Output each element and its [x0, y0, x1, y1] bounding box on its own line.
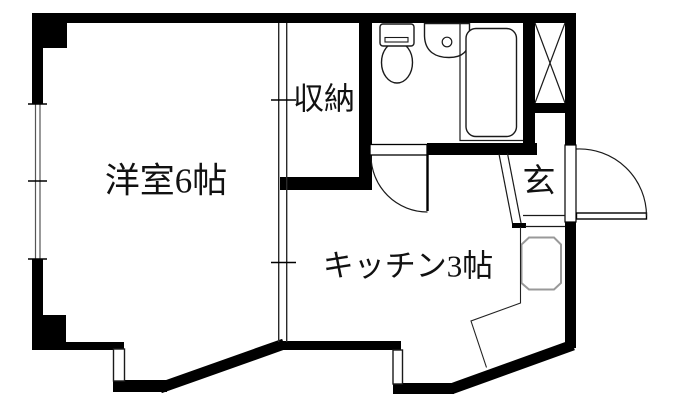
- entrance-door-swing-arc: [577, 149, 647, 216]
- washer-space: [522, 238, 562, 290]
- wall-segment-shaft-bottom: [523, 103, 576, 113]
- toilet-lid-line: [385, 38, 408, 43]
- room-label-western: 洋室6帖: [105, 162, 228, 201]
- wall-segment-left-upper: [32, 13, 43, 104]
- sink: [425, 24, 470, 58]
- genkan-step-line-2: [508, 154, 522, 226]
- floor-plan-canvas: 洋室6帖 キッチン3帖 収納 玄: [0, 0, 678, 406]
- room-label-closet: 収納: [293, 82, 355, 117]
- window-bottom-right: [393, 350, 403, 384]
- bathroom-door-opening: [370, 145, 427, 156]
- wall-segment-bottom-a: [32, 342, 124, 350]
- wall-segment-bath-bottom: [427, 143, 537, 155]
- wall-segment-closet-bottom: [280, 177, 372, 190]
- wall-diagonal-right: [451, 345, 573, 389]
- wall-diagonal-left: [160, 344, 284, 388]
- window-bottom-left: [114, 349, 125, 381]
- wall-segment-right-lower: [565, 222, 576, 348]
- wall-segment-bottom-c: [280, 341, 401, 350]
- wall-segment-top: [32, 13, 576, 23]
- entrance-door: [565, 145, 647, 222]
- room-label-entrance: 玄: [523, 163, 556, 200]
- bathtub-tub: [466, 29, 517, 137]
- toilet-bowl: [382, 42, 413, 83]
- wall-segment-closet-bath: [359, 13, 372, 190]
- genkan-step-line-1: [499, 154, 513, 226]
- wall-segment-shaft-left: [523, 13, 535, 155]
- window-left: [28, 104, 47, 259]
- bathroom-door-swing-arc: [371, 156, 428, 213]
- entrance-door-opening: [565, 145, 576, 222]
- entrance-door-leaf: [577, 213, 647, 219]
- toilet-tank: [380, 24, 414, 46]
- sink-drain: [442, 37, 452, 47]
- bathtub: [460, 24, 523, 141]
- shaft-x-mark: [535, 23, 565, 103]
- wall-segment-bottom-b: [113, 380, 167, 392]
- floor-plan: 洋室6帖 キッチン3帖 収納 玄: [0, 0, 678, 406]
- bathroom-door: [370, 145, 428, 213]
- room-label-kitchen: キッチン3帖: [323, 249, 494, 284]
- toilet: [380, 24, 414, 83]
- wall-segment-right-upper: [565, 13, 576, 145]
